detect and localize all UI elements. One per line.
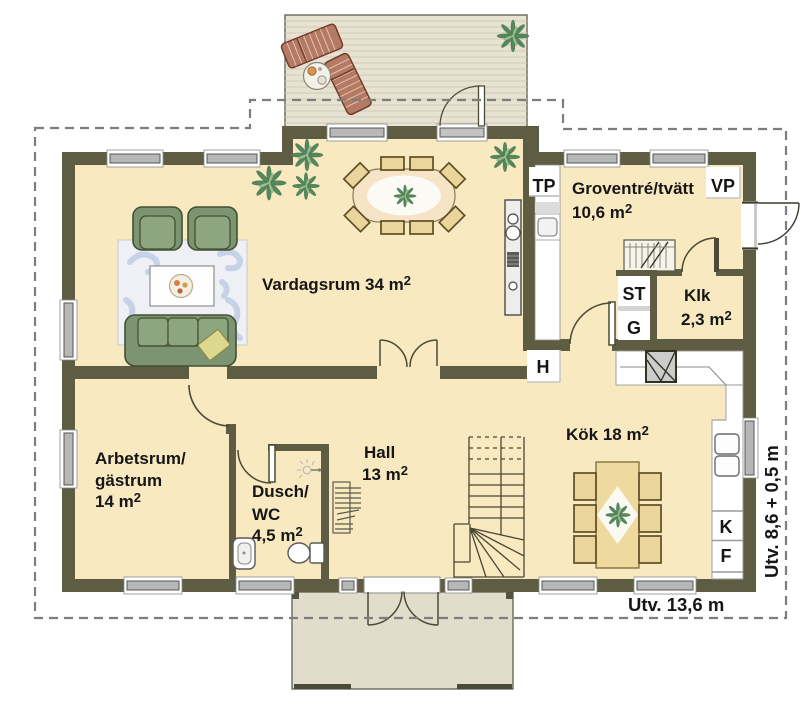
svg-text:ST: ST — [622, 284, 645, 304]
svg-text:G: G — [627, 318, 641, 338]
svg-text:Utv. 13,6 m: Utv. 13,6 m — [628, 594, 724, 615]
svg-text:F: F — [721, 546, 732, 566]
svg-text:Groventré/tvätt: Groventré/tvätt — [572, 179, 694, 198]
svg-text:Dusch/: Dusch/ — [252, 482, 309, 501]
svg-text:VP: VP — [711, 176, 735, 196]
svg-text:gästrum: gästrum — [95, 471, 162, 490]
svg-text:4,5 m2: 4,5 m2 — [252, 524, 303, 545]
svg-text:2,3 m2: 2,3 m2 — [681, 308, 732, 329]
svg-text:H: H — [537, 357, 550, 377]
svg-text:K: K — [720, 517, 733, 537]
svg-text:Arbetsrum/: Arbetsrum/ — [95, 449, 186, 468]
svg-text:Kök 18 m2: Kök 18 m2 — [566, 423, 649, 444]
svg-text:Utv. 8,6 + 0,5 m: Utv. 8,6 + 0,5 m — [761, 445, 782, 578]
svg-text:Vardagsrum 34 m2: Vardagsrum 34 m2 — [262, 273, 411, 294]
svg-text:Klk: Klk — [684, 286, 711, 305]
svg-text:10,6 m2: 10,6 m2 — [572, 201, 632, 222]
svg-text:Hall: Hall — [364, 443, 395, 462]
svg-text:TP: TP — [532, 176, 555, 196]
svg-text:WC: WC — [252, 505, 280, 524]
